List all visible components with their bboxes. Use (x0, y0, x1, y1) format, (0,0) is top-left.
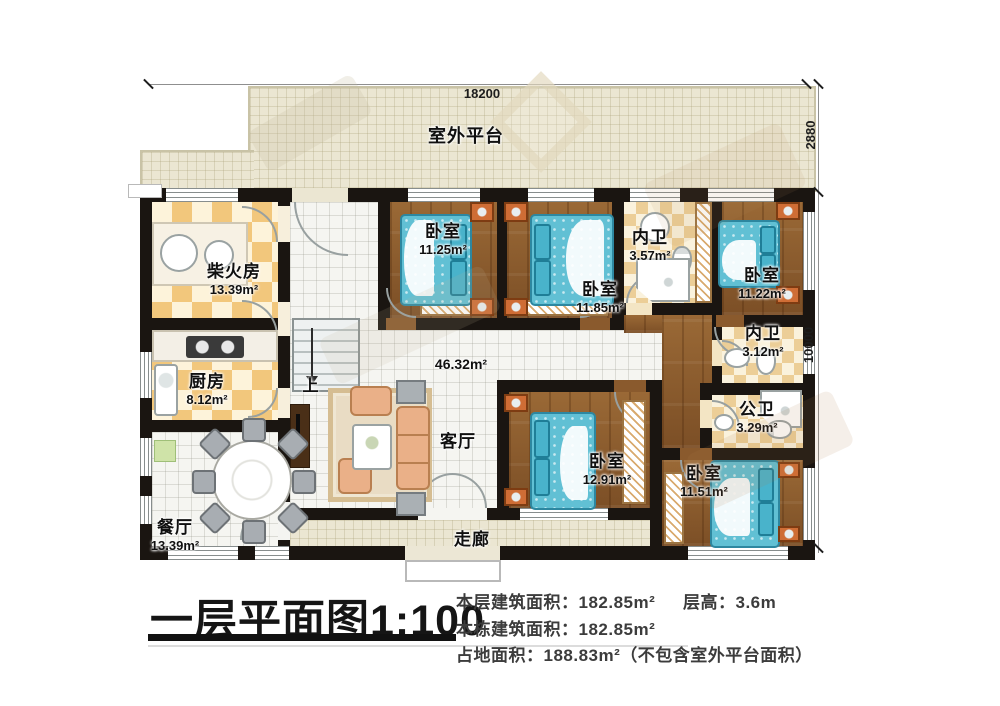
wok-burner-large (160, 234, 198, 272)
pillow (758, 468, 774, 502)
window-kitchen-left (140, 352, 152, 398)
blanket (722, 240, 756, 280)
nightstand (504, 394, 528, 412)
dimension-right-upper-value: 2880 (803, 105, 817, 165)
pillow (534, 260, 551, 296)
stairs-arrow-head (306, 376, 318, 385)
wall-v3 (378, 202, 390, 330)
platform-step (128, 184, 162, 198)
dining-chair (292, 470, 316, 494)
stat-building-area: 本栋建筑面积：182.85m² (456, 615, 655, 640)
nightstand (776, 286, 800, 304)
wardrobe-bedroom4 (622, 400, 646, 504)
nightstand (778, 526, 800, 542)
blanket (560, 426, 588, 500)
stat-floor-area: 本层建筑面积：182.85m² (456, 588, 655, 613)
outdoor-platform-area (248, 86, 816, 192)
door-gap-bath1 (626, 303, 652, 315)
nightstand (504, 488, 528, 506)
bath1-sink (640, 212, 670, 242)
side-table-bottom (396, 492, 426, 516)
door-gap-entry (292, 188, 348, 202)
dining-chair (192, 470, 216, 494)
dimension-line-top (148, 84, 806, 85)
pillow (450, 224, 467, 260)
bath2-sink (724, 348, 750, 368)
closet-bath1 (695, 202, 712, 303)
dining-chair (242, 520, 266, 544)
window-bedroom5-bottom (688, 546, 788, 560)
inner-hall-floor (624, 315, 662, 333)
stairs-arrow-line (311, 328, 313, 378)
pillow (534, 224, 551, 260)
nightstand (504, 298, 528, 316)
door-gap-bath3 (700, 400, 712, 428)
window-bedroom3-right (803, 212, 815, 290)
wall-v9 (650, 383, 662, 546)
door-gap-kitchen2 (278, 388, 290, 418)
pillow (534, 420, 550, 458)
wall-h8 (650, 448, 815, 460)
door-gap-living-double (418, 508, 487, 520)
corridor-floor (290, 520, 662, 546)
dining-table (212, 440, 292, 520)
dimension-top-value: 18200 (452, 86, 512, 101)
dining-chair (242, 418, 266, 442)
window-dining-left1 (140, 438, 152, 476)
pillow (450, 260, 467, 296)
door-gap-bedroom5 (680, 448, 712, 460)
window-bath1-top (630, 188, 680, 202)
stat-land-area: 占地面积：188.83m²（不包含室外平台面积） (456, 641, 813, 666)
window-dining-bottom2 (255, 546, 289, 560)
window-bedroom1-top (408, 188, 480, 202)
door-gap-firewood (278, 206, 290, 242)
window-bedroom5-right (803, 468, 815, 540)
door-gap-bedroom4 (614, 380, 646, 392)
pillow (760, 226, 776, 254)
wardrobe-bedroom5 (664, 472, 684, 544)
bath3-sink (714, 414, 734, 431)
pillow (534, 458, 550, 496)
dimension-line-right (818, 84, 819, 553)
window-plant (154, 440, 176, 462)
title-underline (148, 634, 456, 641)
kitchen-sink (154, 364, 178, 416)
door-gap-bedroom2 (580, 318, 610, 330)
nightstand (470, 202, 494, 222)
dimension-right-lower-value: 10000 (801, 313, 815, 377)
entry-porch (405, 560, 501, 582)
blanket (714, 478, 750, 536)
wok-burner-small (204, 240, 234, 270)
door-gap-bedroom3 (716, 315, 744, 327)
window-bedroom2-top (528, 188, 594, 202)
bath2-toilet (756, 348, 776, 375)
blanket (566, 220, 604, 296)
nightstand (778, 462, 800, 478)
door-gap-kitchen1 (278, 302, 290, 336)
window-firewood-top (166, 188, 238, 202)
stat-floor-height: 层高：3.6m (683, 588, 776, 613)
kitchen-stove (186, 336, 244, 358)
sofa-armchair-top (350, 386, 392, 416)
door-gap-bedroom1 (386, 318, 416, 330)
blanket (404, 220, 434, 296)
staircase (292, 318, 360, 392)
window-dining-bottom1 (168, 546, 238, 560)
window-bedroom3-top (708, 188, 774, 202)
pillow (760, 254, 776, 282)
nightstand (470, 298, 494, 316)
sofa-main (396, 406, 430, 490)
pillow (758, 502, 774, 536)
nightstand (776, 202, 800, 220)
bath3-toilet (766, 420, 792, 439)
window-dining-left2 (140, 496, 152, 524)
coffee-table (352, 424, 392, 470)
nightstand (504, 202, 528, 222)
floorplan-canvas: 室外平台 (0, 0, 1000, 706)
side-table-top (396, 380, 426, 404)
door-gap-main-entry (405, 546, 500, 560)
